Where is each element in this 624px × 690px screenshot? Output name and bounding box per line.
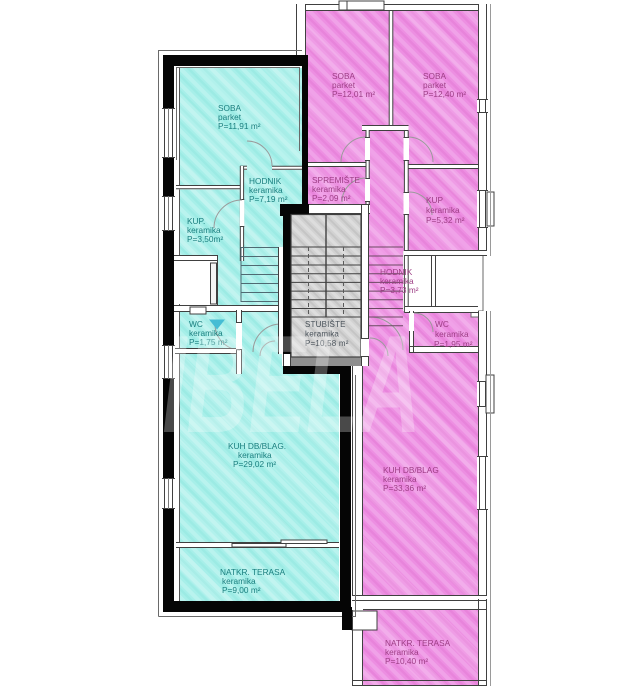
svg-text:P=11,91 m²: P=11,91 m² [218, 121, 261, 131]
svg-text:LIBELA: LIBELA [110, 306, 421, 462]
svg-text:P=12,40 m²: P=12,40 m² [423, 89, 466, 99]
svg-text:P=9,00 m²: P=9,00 m² [222, 585, 261, 595]
svg-text:P=33,36 m²: P=33,36 m² [383, 483, 426, 493]
svg-text:P=12,01 m²: P=12,01 m² [332, 89, 375, 99]
svg-text:P=3,50m²: P=3,50m² [187, 234, 223, 244]
svg-text:P=7,19 m²: P=7,19 m² [249, 194, 288, 204]
svg-text:keramika: keramika [426, 205, 460, 215]
svg-text:KUP: KUP [426, 195, 444, 205]
svg-text:P=1,95 m²: P=1,95 m² [434, 339, 473, 349]
svg-text:P=2,09 m²: P=2,09 m² [312, 193, 351, 203]
svg-text:P=5,32 m²: P=5,32 m² [426, 215, 465, 225]
svg-text:keramika: keramika [435, 329, 469, 339]
svg-text:P=3,73 m²: P=3,73 m² [380, 285, 419, 295]
svg-text:WC: WC [435, 319, 449, 329]
svg-text:P=10,40 m²: P=10,40 m² [385, 656, 428, 666]
